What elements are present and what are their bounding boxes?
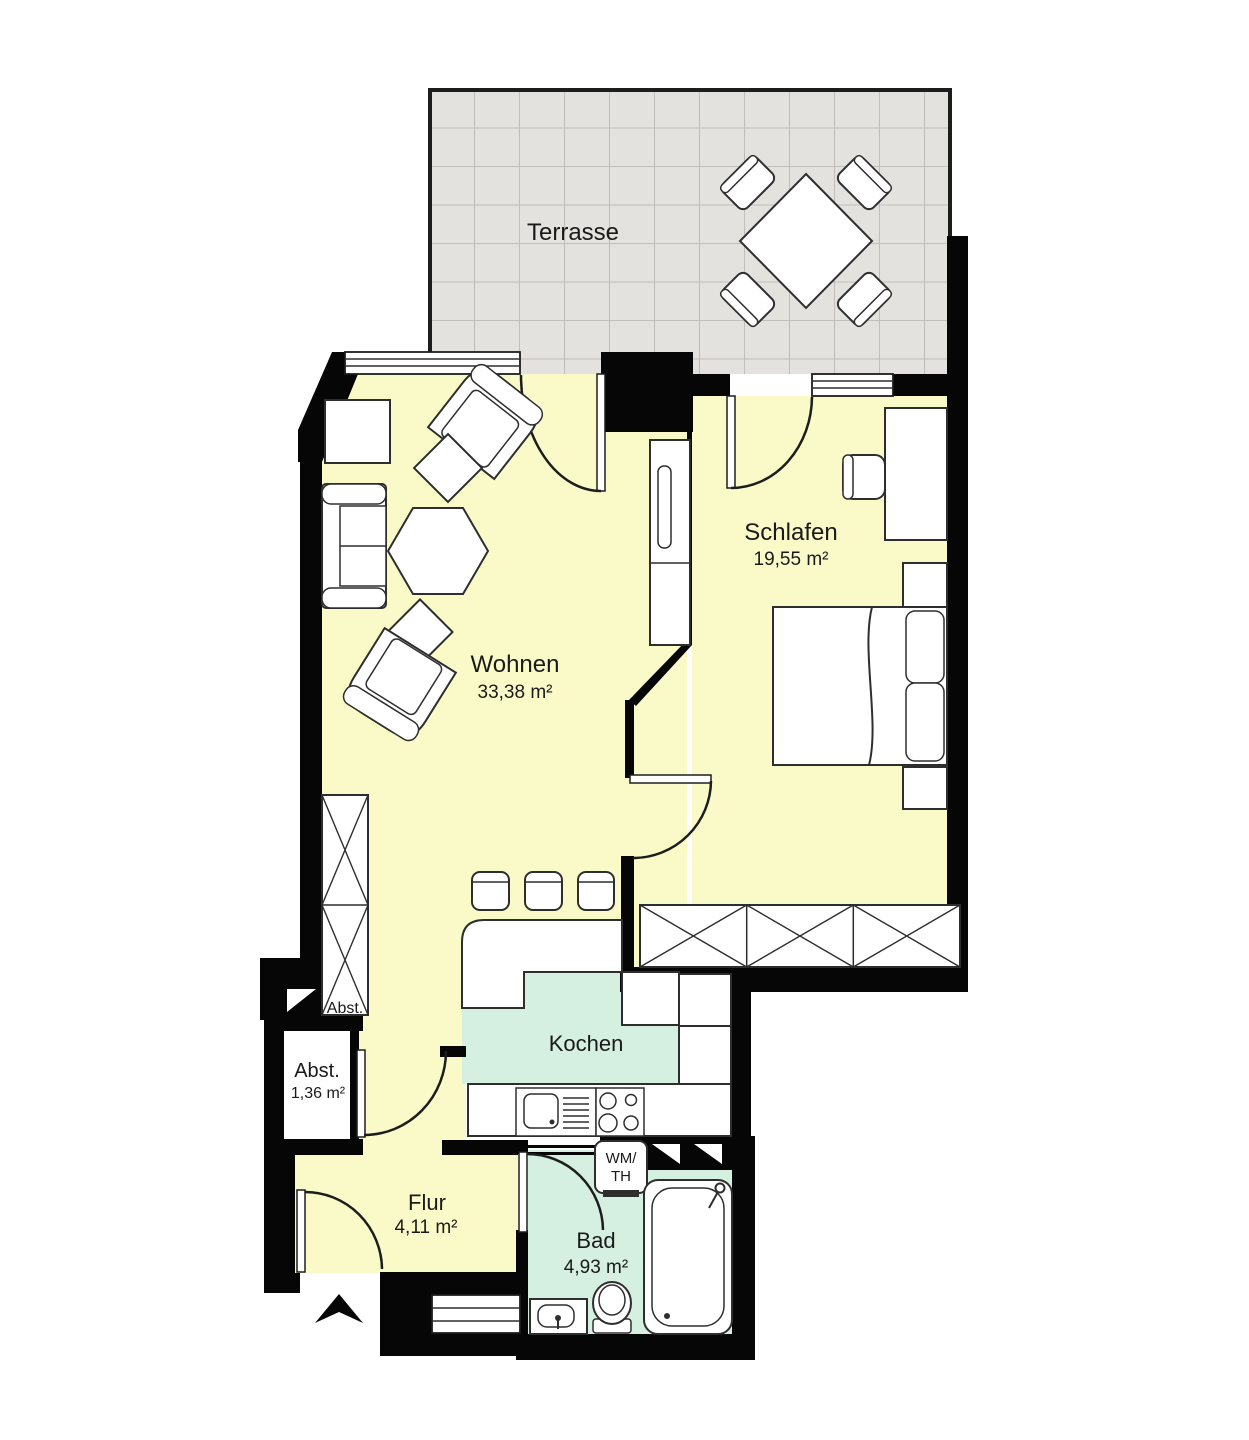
wall-bedroom-top-left	[693, 374, 730, 396]
kitchen-cabinet	[622, 972, 679, 1025]
wall-entry-left	[264, 1273, 300, 1293]
toilet	[593, 1282, 631, 1333]
washer-dryer-label-1: WM/	[606, 1150, 638, 1167]
terrace-furniture	[719, 154, 893, 328]
room-label-schlafen: Schlafen	[744, 519, 837, 546]
entrance-arrow-icon	[315, 1294, 363, 1323]
floor-plan-canvas: WM/ TH Terrasse Wohnen 33,38 m² Schlafen	[0, 0, 1249, 1440]
kitchen-cabinet	[679, 1026, 731, 1084]
kitchen-sink	[516, 1088, 596, 1136]
room-label-flur: Flur	[408, 1190, 446, 1215]
wall-hall-left	[264, 1155, 295, 1273]
wall-kitchen-right	[731, 974, 751, 1136]
wall-bath-partition-a	[528, 1145, 600, 1148]
room-label-wohnen: Wohnen	[471, 651, 560, 678]
stove	[596, 1088, 644, 1136]
kitchen-cabinet	[679, 974, 731, 1026]
room-label-abst: Abst.	[294, 1060, 340, 1082]
wall-storage-left	[264, 1015, 284, 1155]
room-label-abst-closet: Abst.	[327, 1000, 363, 1017]
hallway-floor	[295, 1150, 518, 1273]
washer-dryer-base	[603, 1190, 639, 1197]
wall-right	[947, 236, 968, 992]
tall-cabinet	[650, 440, 690, 645]
room-area-flur: 4,11 m²	[394, 1217, 457, 1238]
bar-stool	[525, 872, 562, 910]
desk	[885, 408, 947, 540]
wall-storage-bottom	[264, 1139, 363, 1155]
bar-stool	[578, 872, 614, 910]
terrace-floor	[430, 90, 950, 374]
bed	[773, 607, 947, 765]
washer-dryer-label-2: TH	[611, 1168, 631, 1185]
wall-entry-step	[380, 1272, 432, 1356]
room-area-abst: 1,36 m²	[291, 1085, 346, 1102]
sideboard	[325, 400, 390, 463]
room-label-bad: Bad	[576, 1228, 615, 1253]
nightstand	[903, 767, 947, 809]
wall-under-hall-top	[432, 1272, 520, 1295]
bathtub-tap	[716, 1184, 725, 1193]
wall-left	[300, 430, 322, 970]
room-label-terrasse: Terrasse	[527, 219, 619, 246]
wall-bath-right	[732, 1156, 755, 1360]
wall-divider-mid	[625, 700, 634, 778]
wall-bedroom-top-right	[893, 374, 949, 396]
wall-door-connector	[440, 1046, 466, 1057]
nightstand	[903, 563, 947, 607]
room-area-schlafen: 19,55 m²	[754, 549, 829, 570]
wall-hall-top	[442, 1140, 518, 1155]
floor-plan: WM/ TH Terrasse Wohnen 33,38 m² Schlafen	[0, 0, 1249, 1440]
room-area-bad: 4,93 m²	[564, 1257, 628, 1278]
window-hall	[432, 1295, 520, 1333]
room-label-kochen: Kochen	[549, 1031, 624, 1056]
bar-stool	[472, 872, 509, 910]
window-bedroom	[812, 374, 893, 396]
window-living	[345, 352, 520, 374]
desk-chair	[843, 455, 885, 499]
wall-bath-bottom	[516, 1334, 755, 1360]
wall-top-block	[601, 352, 693, 432]
bathtub	[644, 1180, 732, 1334]
room-area-wohnen: 33,38 m²	[478, 682, 553, 703]
bathroom-sink	[530, 1299, 587, 1334]
bathtub-drain	[664, 1313, 670, 1319]
wardrobe	[640, 905, 960, 967]
storage-room-floor	[284, 1028, 350, 1139]
washer-dryer: WM/ TH	[595, 1141, 647, 1197]
wall-under-hall-bottom	[432, 1333, 520, 1356]
sink-tap	[555, 1315, 561, 1321]
storage-closet	[322, 795, 368, 1015]
sofa	[322, 484, 386, 608]
